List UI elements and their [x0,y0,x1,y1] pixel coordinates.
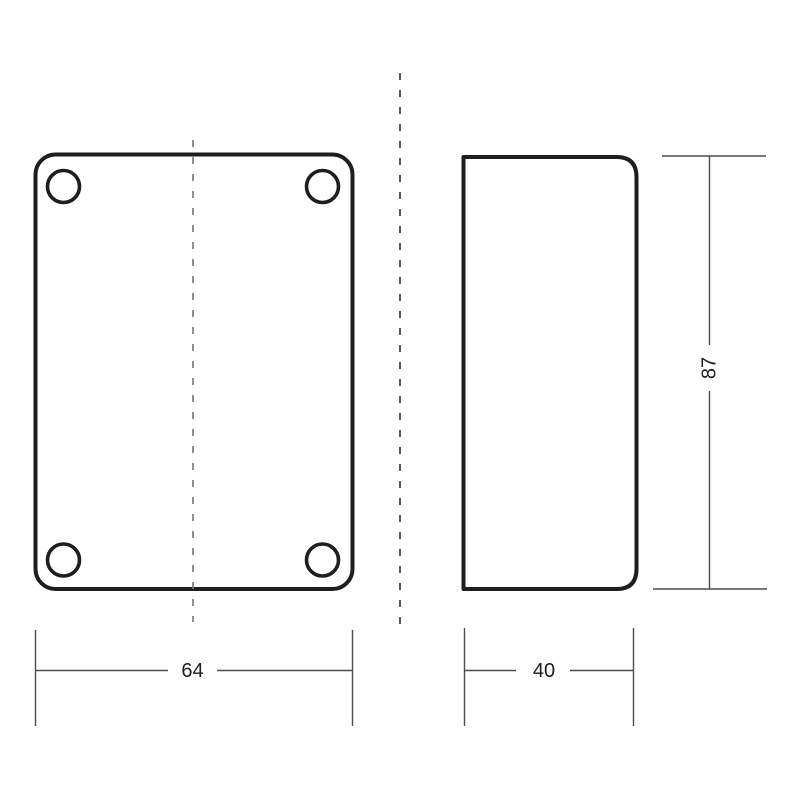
dimension-label-height: 87 [699,357,721,379]
dimension-height: 87 [653,156,767,589]
hole-bottom-right [307,544,339,576]
side-view [464,157,637,589]
dimension-label-front-width: 64 [181,660,203,682]
drawing-svg: 64 40 87 [0,0,800,800]
hole-top-right [307,171,339,203]
hole-bottom-left [48,544,80,576]
technical-drawing-canvas: 64 40 87 [0,0,800,800]
side-view-outline [464,157,637,589]
front-view-outline [36,155,353,590]
dimension-front-width: 64 [36,630,353,726]
hole-top-left [48,171,80,203]
dimension-label-side-width: 40 [533,660,555,682]
front-view [36,140,353,622]
dimension-side-width: 40 [465,628,634,726]
